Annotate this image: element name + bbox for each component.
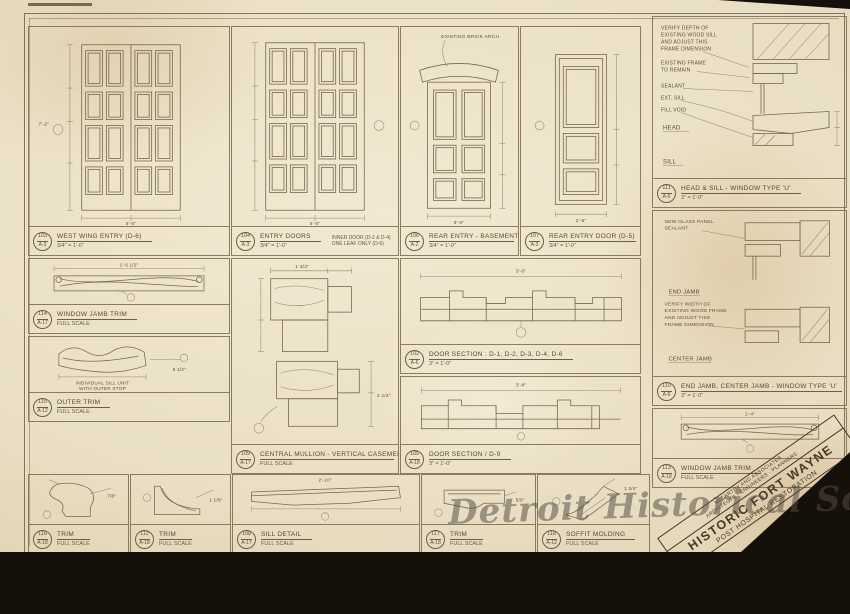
- detail-sheet-ref: A-18: [661, 474, 672, 480]
- detail-number: 114: [37, 312, 48, 320]
- dim-label: 5 1/2": [173, 367, 186, 373]
- detail-title: 102 A-6 DOOR SECTION : D-1, D-2, D-3, D-…: [401, 344, 640, 373]
- detail-title: 103 A-3 WEST WING ENTRY (D-6) 3/4" = 1'-…: [29, 226, 229, 255]
- detail-number: 104: [240, 234, 251, 242]
- detail-title: 104 A-3 ENTRY DOORS 3/4" = 1'-0" INNER D…: [232, 226, 398, 255]
- note-text: FILL VOID: [661, 108, 686, 114]
- detail-bubble: 103 A-3: [33, 232, 52, 251]
- panel-rear-entry-basement: EXISTING BRICK ARCH 3'-0": [400, 26, 519, 256]
- dim-label: 3'-8": [516, 383, 527, 389]
- dim-label: 3'-0": [516, 269, 527, 275]
- detail-title-text: REAR ENTRY - BASEMENT (D-9): [429, 233, 514, 242]
- detail-scale: FULL SCALE: [57, 408, 110, 415]
- detail-title-text: TRIM: [159, 531, 192, 540]
- detail-title: 106 A-2 REAR ENTRY - BASEMENT (D-9) 3/4"…: [401, 226, 518, 255]
- dim-label: 7'-2": [38, 122, 49, 128]
- detail-title-text: WINDOW JAMB TRIM: [57, 311, 137, 320]
- door-section-2-drawing: 3'-8": [401, 377, 640, 444]
- detail-title: 110 A-6 END JAMB, CENTER JAMB - WINDOW T…: [653, 376, 846, 405]
- dim-label: 2 1/4": [377, 393, 391, 399]
- detail-sheet-ref: A-3: [39, 242, 47, 248]
- detail-title-text: CENTRAL MULLION - VERTICAL CASEMENTS: [260, 451, 394, 460]
- window-jamb-trim-drawing: 1'-6 1/2": [29, 259, 229, 304]
- detail-number: 102: [409, 352, 420, 360]
- detail-number: 105: [409, 452, 420, 460]
- section-label: HEAD: [663, 126, 681, 132]
- head-sill-drawing: VERIFY DEPTH OF EXISTING WOOD SILL AND A…: [653, 17, 846, 178]
- note-text: SEALANT: [661, 84, 685, 90]
- detail-bubble: 115 A-12: [33, 398, 52, 417]
- dim-label: 1'-4": [745, 412, 755, 417]
- note-text: AND ADJUST THIS: [665, 315, 711, 321]
- detail-sheet-ref: A-3: [531, 242, 539, 248]
- detail-bubble: 110 A-6: [657, 382, 676, 401]
- edge-marking: [28, 3, 92, 6]
- panel-sill-detail: 2'-10" 108 A-17 SILL DETAIL FULL SCALE: [232, 474, 420, 554]
- detail-scale: FULL SCALE: [159, 540, 192, 547]
- detail-bubble: 117 A-18: [426, 530, 445, 549]
- detail-scale: 3" = 1'-0": [681, 392, 842, 399]
- detail-bubble: 105 A-18: [405, 450, 424, 469]
- dim-label: 2'-8": [576, 218, 587, 224]
- panel-entry-doors: 4'-0" 104 A-3 ENTRY DOORS 3/4" = 1'-0" I…: [231, 26, 399, 256]
- detail-sheet-ref: A-6: [663, 194, 671, 200]
- detail-number: 111: [661, 186, 671, 194]
- panel-door-section-2: 3'-8" 105 A-18 DOOR SECTION / D-9 3" = 1…: [400, 376, 641, 474]
- sill-detail-drawing: 2'-10": [233, 475, 419, 524]
- detail-scale: 3/4" = 1'-0": [429, 242, 514, 249]
- panel-window-jamb-trim: 1'-6 1/2" 114 A-17 WINDOW JAMB TRIM FULL…: [28, 258, 230, 334]
- detail-scale: 3/4" = 1'-0": [260, 242, 321, 249]
- detail-title-text: REAR ENTRY DOOR (D-5): [549, 233, 636, 242]
- detail-bubble: 109 A-17: [236, 450, 255, 469]
- detail-sheet-ref: A-17: [240, 460, 251, 466]
- entry-doors-drawing: 4'-0": [232, 27, 398, 226]
- trim-a-drawing: 7/8": [29, 475, 128, 524]
- panel-outer-trim: 5 1/2" INDIVIDUAL SILL UNIT WITH OUTER S…: [28, 336, 230, 422]
- door-section-1-drawing: 3'-0": [401, 259, 640, 344]
- detail-title: 105 A-18 DOOR SECTION / D-9 3" = 1'-0": [401, 444, 640, 473]
- note-text: AND ADJUST THIS: [661, 40, 708, 46]
- detail-scale: 3" = 1'-0": [429, 360, 573, 367]
- detail-number: 106: [409, 234, 420, 242]
- panel-trim-b: 1 1/8" 112 A-18 TRIM FULL SCALE: [130, 474, 231, 554]
- detail-scale: 3" = 1'-0": [681, 194, 801, 201]
- detail-bubble: 111 A-6: [657, 184, 676, 203]
- west-wing-entry-drawing: 7'-2" 4'-0": [29, 27, 229, 226]
- panel-trim-a: 7/8" 116 A-18 TRIM FULL SCALE: [28, 474, 129, 554]
- detail-bubble: 106 A-2: [405, 232, 424, 251]
- detail-bubble: 107 A-3: [525, 232, 544, 251]
- detail-number: 103: [37, 234, 48, 242]
- detail-sheet-ref: A-6: [411, 360, 419, 366]
- detail-bubble: 104 A-3: [236, 232, 255, 251]
- detail-sheet-ref: A-17: [37, 320, 48, 326]
- section-label: CENTER JAMB: [668, 356, 712, 362]
- detail-title-text: END JAMB, CENTER JAMB - WINDOW TYPE 'U': [681, 383, 842, 392]
- detail-bubble: 102 A-6: [405, 350, 424, 369]
- detail-number: 115: [37, 400, 48, 408]
- detail-title: 107 A-3 REAR ENTRY DOOR (D-5) 3/4" = 1'-…: [521, 226, 640, 255]
- note-text: EXISTING BRICK ARCH: [441, 34, 499, 40]
- detail-bubble: 113 A-18: [657, 464, 676, 483]
- detail-number: 107: [529, 234, 540, 242]
- trim-b-drawing: 1 1/8": [131, 475, 230, 524]
- detail-bubble: 116 A-18: [33, 530, 52, 549]
- detail-number: 113: [661, 466, 672, 474]
- detail-number: 116: [37, 532, 48, 540]
- detail-scale: FULL SCALE: [261, 540, 312, 547]
- detail-sheet-ref: A-2: [411, 242, 419, 248]
- panel-rear-entry-door: 2'-8" 107 A-3 REAR ENTRY DOOR (D-5) 3/4"…: [520, 26, 641, 256]
- detail-scale: FULL SCALE: [566, 540, 635, 547]
- detail-bubble: 118 A-12: [542, 530, 561, 549]
- detail-title-text: SILL DETAIL: [261, 531, 312, 540]
- detail-number: 118: [546, 532, 557, 540]
- detail-title: 116 A-18 TRIM FULL SCALE: [29, 524, 128, 553]
- detail-title: 108 A-17 SILL DETAIL FULL SCALE: [233, 524, 419, 553]
- detail-title: 112 A-18 TRIM FULL SCALE: [131, 524, 230, 553]
- dim-label: 7/8": [107, 494, 116, 499]
- detail-title-text: WEST WING ENTRY (D-6): [57, 233, 152, 242]
- note-text: INDIVIDUAL SILL UNIT: [76, 380, 129, 386]
- note-text: TO REMAIN: [661, 68, 691, 74]
- section-label: END JAMB: [668, 290, 699, 296]
- panel-central-mullion: 1 3/4" 2 1/4" 109 A-17 CENTRAL MULLION -…: [231, 258, 399, 474]
- detail-title-text: HEAD & SILL - WINDOW TYPE 'U': [681, 185, 801, 194]
- detail-sheet-ref: A-3: [242, 242, 250, 248]
- detail-title-text: SOFFIT MOLDING: [566, 531, 635, 540]
- detail-sheet-ref: A-12: [546, 540, 557, 546]
- detail-title-text: DOOR SECTION : D-1, D-2, D-3, D-4, D-6: [429, 351, 573, 360]
- panel-head-sill: VERIFY DEPTH OF EXISTING WOOD SILL AND A…: [652, 16, 847, 208]
- panel-jambs: NEW GLASS PANEL SEALANT END JAMB VERIFY …: [652, 210, 847, 406]
- detail-title-text: ENTRY DOORS: [260, 233, 321, 242]
- detail-bubble: 112 A-18: [135, 530, 154, 549]
- note-text: SEALANT: [665, 226, 689, 232]
- note-text: EXISTING WOOD FRAME: [665, 308, 728, 314]
- detail-sheet-ref: A-18: [37, 540, 48, 546]
- rear-entry-basement-drawing: EXISTING BRICK ARCH 3'-0": [401, 27, 518, 226]
- drawing-sheet: 7'-2" 4'-0" 103 A-3 WEST WING ENTRY (D-6…: [0, 0, 850, 564]
- panel-door-section-1: 3'-0" 102 A-6 DOOR SECTION : D-1, D-2, D…: [400, 258, 641, 374]
- note-text: FRAME DIMENSION: [665, 322, 715, 328]
- jambs-drawing: NEW GLASS PANEL SEALANT END JAMB VERIFY …: [653, 211, 846, 376]
- detail-title-text: OUTER TRIM: [57, 399, 110, 408]
- detail-number: 117: [430, 532, 441, 540]
- job-number: 7610: [743, 536, 773, 562]
- dim-label: 1 3/4": [295, 264, 309, 270]
- detail-scale: 3/4" = 1'-0": [57, 242, 152, 249]
- note-text: VERIFY WIDTH OF: [665, 301, 711, 307]
- detail-title: 111 A-6 HEAD & SILL - WINDOW TYPE 'U' 3"…: [653, 178, 846, 207]
- note-text: EXISTING WOOD SILL: [661, 33, 717, 39]
- detail-scale: FULL SCALE: [260, 460, 394, 467]
- detail-title: 115 A-12 OUTER TRIM FULL SCALE: [29, 392, 229, 421]
- detail-title: 114 A-17 WINDOW JAMB TRIM FULL SCALE: [29, 304, 229, 333]
- detail-scale: 3" = 1'-0": [429, 460, 511, 467]
- panel-west-wing-entry: 7'-2" 4'-0" 103 A-3 WEST WING ENTRY (D-6…: [28, 26, 230, 256]
- detail-number: 112: [139, 532, 150, 540]
- detail-bubble: 114 A-17: [33, 310, 52, 329]
- detail-title-text: DOOR SECTION / D-9: [429, 451, 511, 460]
- note-text: NEW GLASS PANEL: [665, 219, 714, 225]
- detail-title: 109 A-17 CENTRAL MULLION - VERTICAL CASE…: [232, 444, 398, 473]
- detail-sheet-ref: A-18: [139, 540, 150, 546]
- detail-sheet-ref: A-17: [241, 540, 252, 546]
- detail-number: 108: [241, 532, 252, 540]
- dim-label: 1 1/8": [209, 497, 222, 502]
- dim-label: 1'-6 1/2": [120, 263, 139, 268]
- note-text: VERIFY DEPTH OF: [661, 26, 709, 32]
- detail-title-text: TRIM: [57, 531, 90, 540]
- central-mullion-drawing: 1 3/4" 2 1/4": [232, 259, 398, 444]
- detail-scale: 3/4" = 1'-0": [549, 242, 636, 249]
- dim-label: 2'-10": [318, 478, 331, 483]
- detail-bubble: 108 A-17: [237, 530, 256, 549]
- detail-scale: FULL SCALE: [57, 320, 137, 327]
- detail-scale: FULL SCALE: [57, 540, 90, 547]
- note-text: EXISTING FRAME: [661, 61, 706, 67]
- detail-sheet-ref: A-12: [37, 408, 48, 414]
- outer-trim-drawing: 5 1/2" INDIVIDUAL SILL UNIT WITH OUTER S…: [29, 337, 229, 392]
- detail-scale: FULL SCALE: [450, 540, 483, 547]
- detail-note: INNER DOOR (D-2 & D-4) ONE LEAF ONLY (D-…: [332, 235, 391, 248]
- detail-sheet-ref: A-6: [663, 392, 671, 398]
- detail-number: 110: [661, 384, 672, 392]
- rear-entry-door-drawing: 2'-8": [521, 27, 640, 226]
- detail-number: 109: [240, 452, 251, 460]
- detail-sheet-ref: A-18: [409, 460, 420, 466]
- detail-sheet-ref: A-18: [430, 540, 441, 546]
- section-label: SILL: [663, 160, 677, 166]
